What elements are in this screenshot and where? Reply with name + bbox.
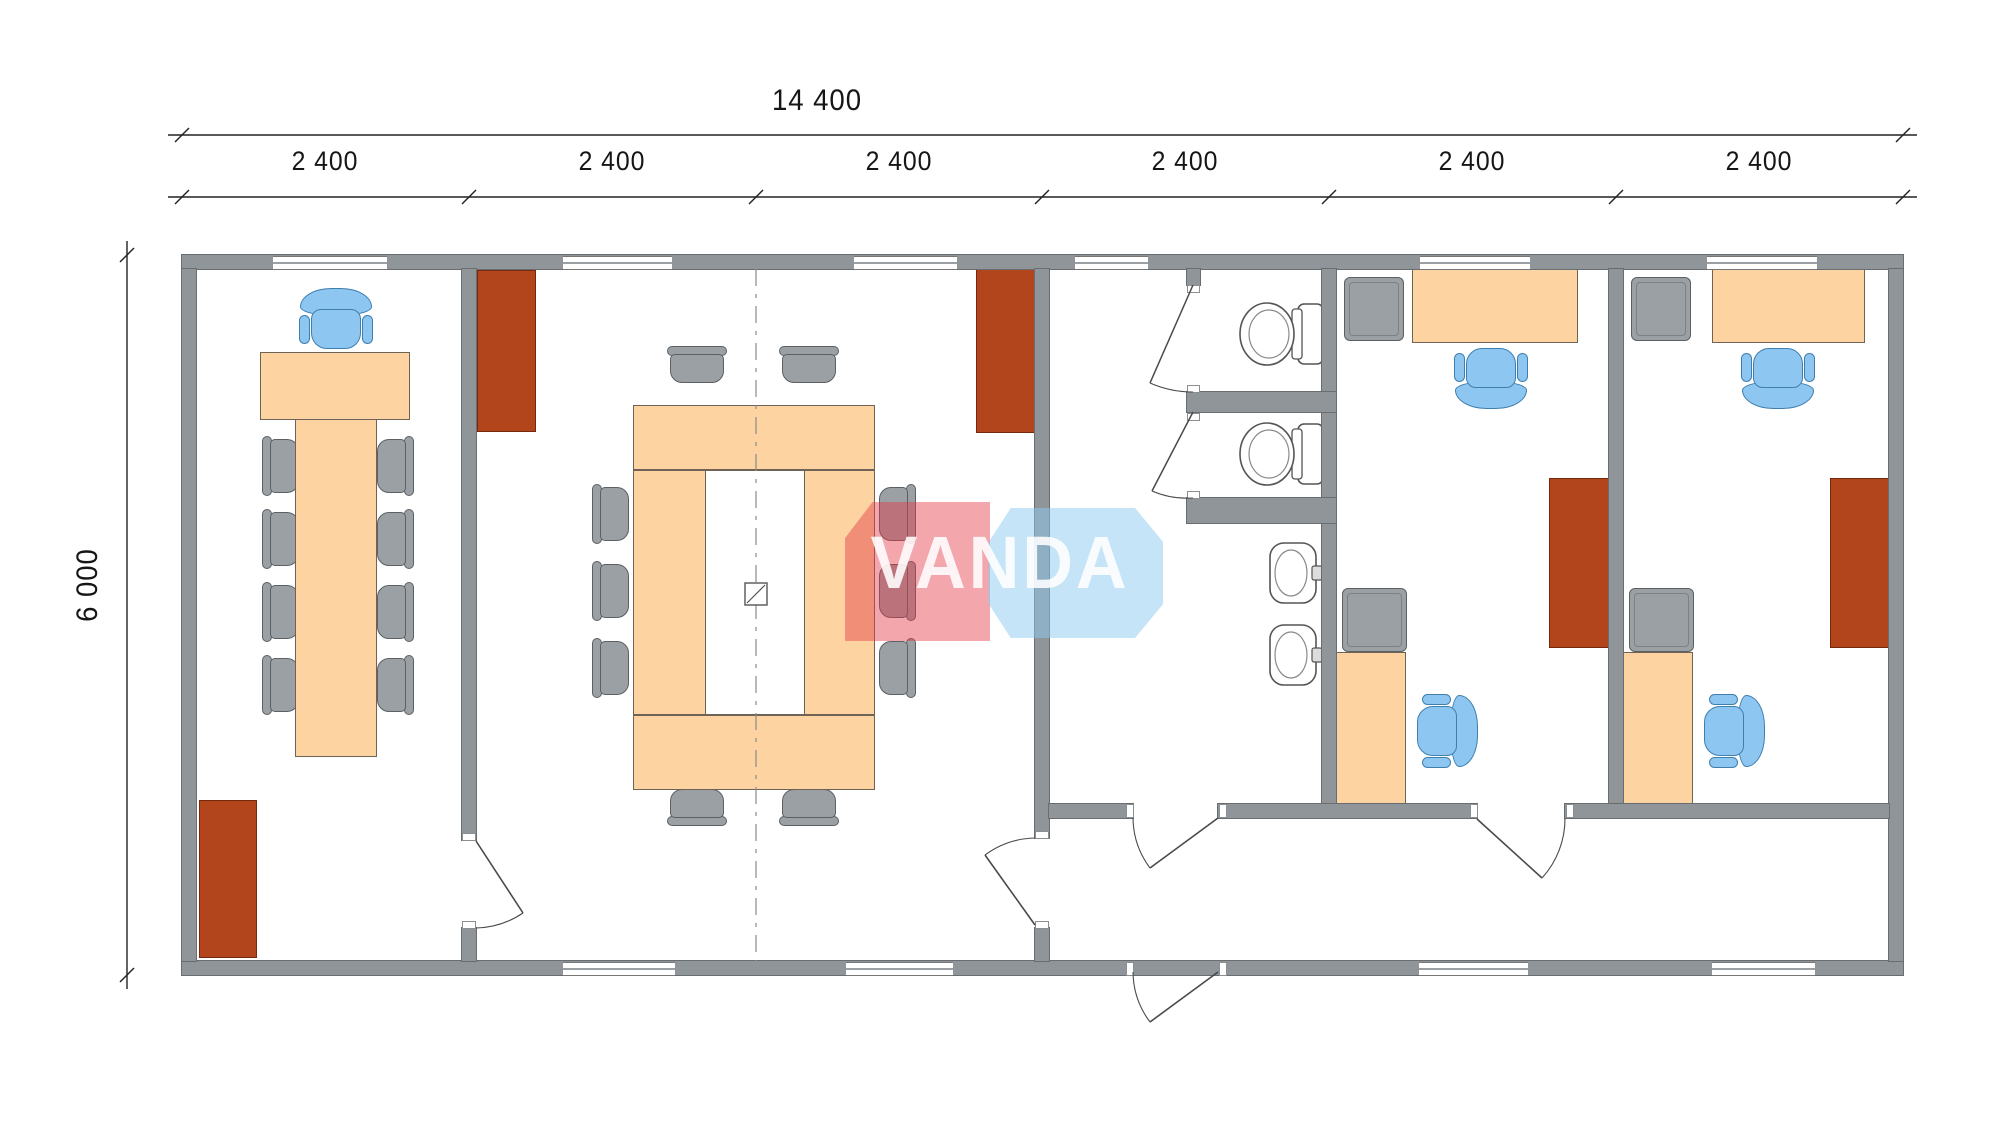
table-seam <box>633 714 875 716</box>
office1-side-chair <box>1414 691 1478 771</box>
conference-chair <box>592 560 630 622</box>
door-office1 <box>1477 818 1565 878</box>
office1-task-chair <box>1453 343 1531 409</box>
wc-front-wall-stub <box>1187 269 1200 285</box>
dimension-label-module-2: 2 400 <box>557 146 667 177</box>
wall-top <box>182 255 1903 269</box>
partition-office1-office2 <box>1609 269 1623 818</box>
conference-chair <box>666 788 728 826</box>
door-jamb <box>1126 962 1134 976</box>
wall-left <box>182 269 196 961</box>
door-meeting-room <box>476 841 523 928</box>
conference-table-opening <box>705 470 805 715</box>
office1-storage-unit <box>1344 277 1404 341</box>
door-conference <box>985 838 1035 925</box>
toilet-2 <box>1238 420 1326 488</box>
door-jamb <box>1187 285 1200 293</box>
office2-task-chair <box>1740 343 1818 409</box>
conference-cabinet-left <box>477 270 536 432</box>
door-jamb <box>462 921 476 929</box>
corridor-wall-a <box>1049 804 1133 818</box>
floor-plan-canvas: 14 400 2 400 2 400 2 400 2 400 2 400 2 4… <box>0 0 2000 1147</box>
office2-desk <box>1712 269 1865 343</box>
partition-corridor-office1 <box>1322 269 1336 818</box>
wash-basin-1 <box>1268 540 1324 606</box>
toilet-1 <box>1238 300 1326 368</box>
meeting-chair <box>376 508 414 570</box>
door-jamb <box>1187 413 1200 421</box>
meeting-chair <box>376 435 414 497</box>
dimension-label-total-width: 14 400 <box>762 84 872 118</box>
conference-chair <box>878 637 916 699</box>
dimension-label-height: 6 000 <box>71 539 105 631</box>
door-jamb <box>1035 831 1049 839</box>
wall-right <box>1889 269 1903 961</box>
meeting-room-cabinet <box>199 800 257 958</box>
meeting-chair <box>376 654 414 716</box>
office2-side-desk <box>1623 652 1693 804</box>
window-bottom-module2 <box>563 962 675 976</box>
door-jamb <box>1035 921 1049 929</box>
conference-chair <box>592 637 630 699</box>
dimension-label-module-4: 2 400 <box>1130 146 1240 177</box>
meeting-chair <box>376 581 414 643</box>
door-jamb <box>462 833 476 841</box>
dimension-line-total <box>168 128 1917 142</box>
dimension-label-module-6: 2 400 <box>1704 146 1814 177</box>
window-top-module3 <box>854 256 957 270</box>
office2-storage-unit <box>1631 277 1691 341</box>
dimension-label-module-1: 2 400 <box>270 146 380 177</box>
window-top-module2 <box>563 256 672 270</box>
dimension-label-module-3: 2 400 <box>844 146 954 177</box>
wash-basin-2 <box>1268 622 1324 688</box>
office1-cabinet <box>1549 478 1609 648</box>
conference-chair <box>666 346 728 384</box>
meeting-room-executive-chair <box>296 288 376 352</box>
door-jamb <box>1219 962 1227 976</box>
vanda-logo-text: VANDA <box>867 520 1133 605</box>
door-jamb <box>1566 804 1574 818</box>
dimension-label-module-5: 2 400 <box>1417 146 1527 177</box>
office2-side-chair <box>1701 691 1765 771</box>
office2-storage-unit <box>1629 588 1694 652</box>
office2-cabinet <box>1830 478 1890 648</box>
door-jamb <box>1187 491 1200 499</box>
window-top-module5 <box>1420 256 1530 270</box>
conference-chair <box>778 788 840 826</box>
window-bottom-module5 <box>1419 962 1528 976</box>
door-jamb <box>1187 385 1200 393</box>
corridor-wall-c <box>1565 804 1889 818</box>
door-jamb <box>1470 804 1478 818</box>
door-jamb <box>1126 804 1134 818</box>
dimension-line-modules <box>168 190 1917 204</box>
chair-armrest <box>362 315 373 344</box>
chair-armrest <box>299 315 310 344</box>
door-wc-stall1 <box>1150 285 1193 392</box>
door-entrance <box>1133 972 1218 1022</box>
door-lobby-inner <box>1133 818 1218 868</box>
window-top-module6 <box>1707 256 1817 270</box>
conference-chair <box>778 346 840 384</box>
wc-bottom-wall <box>1187 498 1336 523</box>
office1-side-desk <box>1336 652 1406 804</box>
office1-storage-unit <box>1342 588 1407 652</box>
wc-middle-wall <box>1187 392 1336 412</box>
meeting-table <box>295 419 377 757</box>
door-wc-stall2 <box>1152 412 1193 498</box>
window-bottom-module6 <box>1712 962 1815 976</box>
conference-chair <box>592 483 630 545</box>
partition-conference-hall-stub <box>1035 928 1049 961</box>
conference-cabinet-right <box>976 268 1035 433</box>
office1-desk <box>1412 269 1578 343</box>
door-jamb <box>1219 804 1227 818</box>
wall-bottom <box>182 961 1903 975</box>
window-bottom-module3 <box>846 962 953 976</box>
window-top-module4 <box>1075 256 1148 270</box>
table-seam <box>633 469 875 471</box>
corridor-wall-b <box>1218 804 1477 818</box>
chair-seat <box>311 309 361 349</box>
dimension-line-height <box>120 241 134 989</box>
partition-meeting-conference-upper <box>462 269 476 840</box>
partition-meeting-conference-stub <box>462 928 476 961</box>
window-top-module1 <box>273 256 387 270</box>
meeting-table-head <box>260 352 410 420</box>
